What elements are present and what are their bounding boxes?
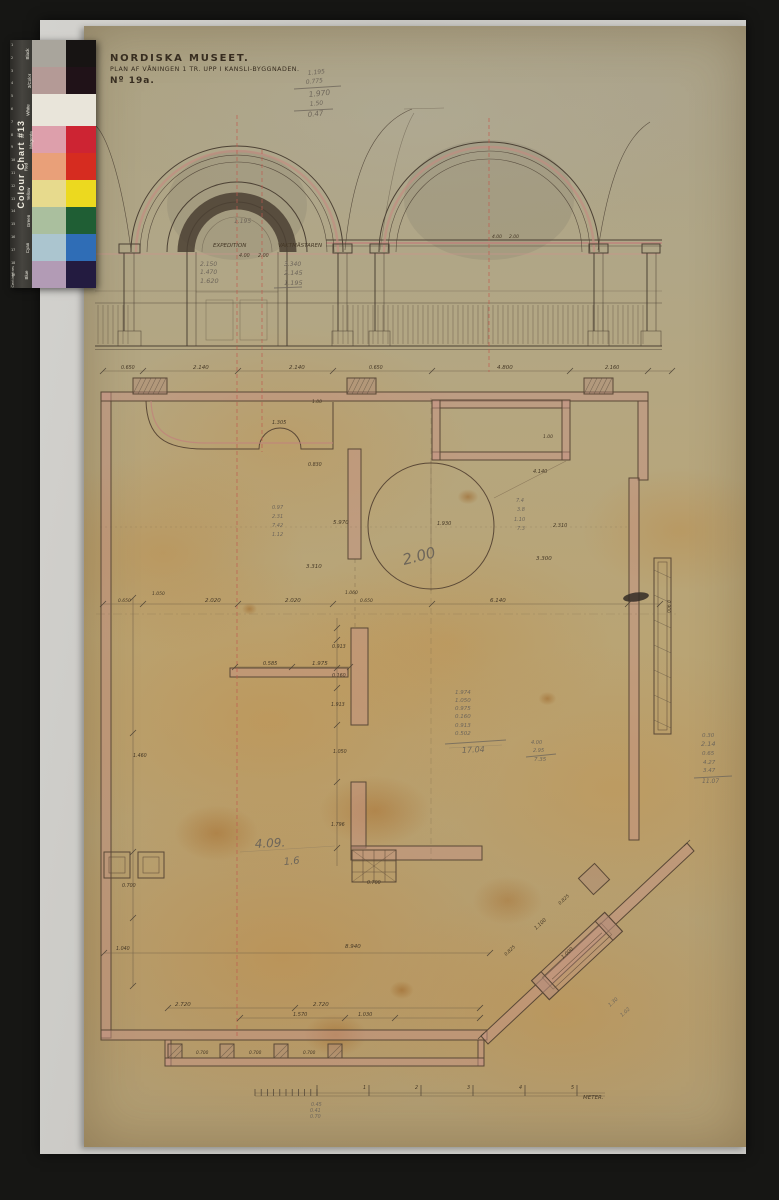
dimension-label: 4.27	[703, 760, 716, 766]
color-chart-row	[32, 126, 96, 153]
color-row-label: White	[25, 104, 30, 116]
dimension-label: 17.04	[462, 745, 485, 755]
title-block: NORDISKA MUSEET. PLAN AF VÅNINGEN 1 TR. …	[110, 53, 300, 86]
ruler-number: 15	[11, 222, 15, 226]
dimension-label: 0.160	[455, 714, 471, 720]
dimension-label: 1.974	[455, 690, 471, 696]
wall	[101, 1030, 487, 1040]
wall	[638, 401, 648, 480]
dimension-label: 0.650	[118, 598, 131, 604]
dimension-label: EXPEDITION	[213, 243, 246, 249]
drawing-line	[654, 620, 671, 628]
ink-blot	[623, 591, 650, 604]
wall	[432, 452, 570, 460]
color-chart-row	[32, 40, 96, 67]
aux-hatching	[98, 305, 690, 1096]
ruler-number: 3	[11, 69, 13, 73]
ruler-number: 10	[11, 158, 15, 162]
dimension-label: METER.	[583, 1095, 604, 1101]
centimetres-label: Centimetres	[11, 266, 15, 287]
color-chart-row	[32, 261, 96, 288]
wall	[101, 392, 111, 1038]
architectural-drawing: EXPEDITIONVAKTMÄSTAREN4.002.002.1501.470…	[0, 0, 779, 1200]
diagonal-door-detail	[532, 912, 623, 999]
color-patch-full	[66, 67, 96, 94]
color-chart-row	[32, 180, 96, 207]
dimension-label: 0.825	[557, 893, 571, 906]
dimension-label: 7.42	[272, 523, 283, 529]
dimension-label: 0.47	[307, 109, 324, 119]
dimension-label: 0.913	[332, 644, 346, 650]
ruler-number: 12	[11, 184, 15, 188]
dimension-label: 0.585	[263, 661, 277, 667]
dimension-label: 1.30	[607, 996, 619, 1008]
drawing-line	[654, 570, 671, 578]
dimension-label: 2.31	[272, 514, 283, 520]
dimension-label: 11.07	[702, 778, 719, 785]
wall	[351, 846, 482, 860]
elevation-section	[95, 108, 662, 350]
color-patch-light	[32, 153, 66, 180]
dimension-label: 1.970	[308, 88, 331, 99]
color-patch	[32, 94, 96, 126]
dimension-label: 4.140	[533, 469, 547, 475]
ruler-number: 18	[11, 261, 15, 265]
color-patch-full	[66, 261, 96, 288]
dimension-label: 1	[363, 1085, 366, 1091]
color-patch-light	[32, 234, 66, 261]
dimension-label: 1.10	[514, 517, 525, 523]
dimension-label: 0.70	[310, 1114, 321, 1120]
dimension-label: 0.913	[455, 723, 471, 729]
dimension-label: 3.340	[284, 261, 301, 268]
archival-photo: EXPEDITIONVAKTMÄSTAREN4.002.002.1501.470…	[0, 0, 779, 1200]
wall	[432, 400, 570, 408]
color-patch-light	[32, 180, 66, 207]
color-row-label: Green	[26, 214, 31, 227]
dimension-label: 1.620	[200, 277, 219, 285]
wall	[348, 449, 361, 559]
dimension-label: 3.300	[536, 556, 552, 562]
color-row-label: Red	[24, 162, 29, 170]
dimension-label: 2.00	[509, 234, 519, 240]
color-row-label: Blue	[24, 270, 29, 279]
dimension-label: 2.95	[533, 748, 544, 754]
dimension-label: 4	[519, 1085, 522, 1091]
color-patch-full	[66, 153, 96, 180]
dimension-label: 2.160	[605, 365, 619, 371]
color-row-label: Black	[25, 48, 30, 59]
color-row-label: Magenta	[28, 131, 33, 149]
dimension-label: 4.00	[531, 740, 542, 746]
diagonal-pier-detail	[578, 863, 609, 894]
dimension-label: 8.940	[345, 944, 361, 950]
ruler-number: 16	[11, 235, 15, 239]
dimension-label: 4.800	[497, 365, 513, 371]
dimension-label: 0.650	[369, 365, 383, 371]
color-patch-light	[32, 40, 66, 67]
color-row-label: Yellow	[26, 187, 31, 200]
dimension-label: 1.050	[455, 698, 471, 704]
dimension-label: 1.913	[331, 702, 345, 708]
dimension-label: 0.700	[367, 880, 381, 886]
dimension-label: 1.195	[284, 279, 303, 287]
dimension-label: 1.796	[331, 822, 345, 828]
color-chart-row	[32, 94, 96, 126]
dimension-label: 0.160	[332, 673, 346, 679]
ruler-number: 7	[11, 120, 13, 124]
wall	[165, 1058, 484, 1066]
color-chart-row	[32, 153, 96, 180]
wall	[432, 400, 440, 460]
dimension-label: 2.140	[289, 365, 305, 371]
dimension-label: 1.00	[312, 399, 322, 405]
dimension-label: 1.570	[293, 1012, 307, 1018]
dimension-label: 2.145	[284, 269, 303, 277]
dimension-label: 1.12	[272, 532, 283, 538]
dimension-label: 0.700	[122, 883, 136, 889]
dimension-label: 6.140	[490, 598, 506, 604]
drawing-subtitle: PLAN AF VÅNINGEN 1 TR. UPP I KANSLI-BYGG…	[110, 66, 300, 73]
dimension-label: 0.700	[303, 1050, 316, 1056]
dimension-label: 0.700	[196, 1050, 209, 1056]
color-chart-rows	[32, 40, 96, 288]
dimension-label: 1.305	[272, 420, 286, 426]
dimension-label: 0.775	[305, 77, 323, 86]
color-chart-row	[32, 234, 96, 261]
drawing-line	[654, 670, 671, 678]
dimension-label: 0.65	[702, 751, 715, 757]
dimension-label: 2.14	[701, 740, 715, 748]
ruler-number: 4	[11, 81, 13, 85]
dimension-label: 1.050	[333, 749, 347, 755]
dimension-label: 7.4	[516, 498, 524, 504]
dimension-label: 0.30	[702, 733, 715, 739]
dimension-label: 1.060	[345, 590, 358, 596]
dimension-label: 1.00	[543, 434, 553, 440]
drawing-title: NORDISKA MUSEET.	[110, 53, 300, 64]
color-patch-light	[32, 261, 66, 288]
drawing-number: Nº 19a.	[110, 76, 300, 86]
dimension-label: VAKTMÄSTAREN	[278, 242, 322, 249]
dimension-label: 0.650	[360, 598, 373, 604]
ruler-number: 9	[11, 145, 13, 149]
dimension-label: 0.502	[455, 731, 471, 737]
dimension-label: 7.35	[534, 757, 547, 763]
dimension-label: 1.030	[358, 1012, 372, 1018]
wall	[629, 478, 639, 840]
wall	[351, 628, 368, 725]
dimension-label: 2.720	[313, 1002, 329, 1008]
ruler-number: 1	[11, 43, 13, 47]
ruler-number: 8	[11, 133, 13, 137]
color-patch-light	[32, 67, 66, 94]
dimension-label: 1.975	[312, 661, 328, 667]
dimension-label: 0.900	[665, 600, 671, 613]
dimension-label: 5.970	[333, 520, 349, 526]
dimension-label: 2.720	[175, 1002, 191, 1008]
dimension-label: 1.195	[234, 218, 251, 225]
dimension-label: 0.41	[310, 1108, 321, 1114]
dimension-label: 1.6	[283, 856, 300, 868]
dimension-label: 4.00	[492, 234, 502, 240]
dimension-label: 4.00	[239, 253, 250, 259]
dimension-label: 0.45	[311, 1102, 322, 1108]
floor-plan	[101, 378, 694, 1066]
color-row-label: 3/Color	[27, 73, 32, 88]
ruler-number: 11	[11, 171, 15, 175]
dimension-label: 1.470	[200, 269, 217, 276]
dimension-label: 0.830	[308, 462, 322, 468]
dimension-label: 4.09.	[254, 835, 285, 851]
dimension-label: 1.50	[309, 100, 323, 108]
dimension-label: 7.3	[517, 526, 525, 532]
color-patch-full	[66, 40, 96, 67]
color-chart-ruler: 12345678910111213141516171819 Colour Cha…	[10, 40, 32, 288]
dimension-label: 1.100	[533, 917, 548, 931]
dimension-label: 3.310	[306, 564, 322, 570]
dimension-label: 1.040	[116, 946, 130, 952]
dimension-label: 5	[571, 1085, 574, 1091]
dimension-label: 2	[415, 1085, 418, 1091]
color-patch-full	[66, 234, 96, 261]
dimension-label: 3	[467, 1085, 470, 1091]
dimension-label: 0.825	[503, 944, 517, 957]
dimension-label: 2.00	[258, 253, 269, 259]
ruler-number: 14	[11, 209, 15, 213]
color-chart-row	[32, 67, 96, 94]
dimension-label: 1.02	[619, 1006, 631, 1018]
dimension-label: 1.460	[133, 753, 147, 759]
color-calibration-chart: 12345678910111213141516171819 Colour Cha…	[10, 40, 96, 288]
color-patch-light	[32, 126, 66, 153]
ruler-number: 5	[11, 94, 13, 98]
dimension-label: 0.97	[272, 505, 284, 511]
dimension-label: 0.650	[121, 365, 135, 371]
ruler-number: 13	[11, 197, 15, 201]
ruler-number: 6	[11, 107, 13, 111]
wall	[351, 782, 366, 848]
dimension-label: 2.020	[285, 598, 301, 604]
ruler-number: 2	[11, 56, 13, 60]
curved-bay	[146, 401, 333, 449]
dimension-lines	[96, 371, 676, 1096]
wall	[562, 400, 570, 460]
color-chart-row	[32, 207, 96, 234]
dimension-label: 3.8	[517, 507, 525, 513]
dimension-label: 2.140	[193, 365, 209, 371]
dimension-label: 2.150	[200, 261, 217, 268]
dimension-label: 2.00	[401, 543, 438, 569]
color-patch-full	[66, 207, 96, 234]
color-patch-full	[66, 126, 96, 153]
color-patch-full	[66, 180, 96, 207]
dimension-label: 1.930	[437, 521, 451, 527]
dimension-label: 0.700	[249, 1050, 262, 1056]
drawing-line	[654, 695, 671, 703]
drawing-line	[654, 645, 671, 653]
dimension-label: 3.47	[703, 768, 716, 774]
dimension-label: 2.020	[205, 598, 221, 604]
color-patch-light	[32, 207, 66, 234]
dimension-label: 1.195	[307, 68, 325, 77]
ruler-number: 17	[11, 248, 15, 252]
wall	[230, 668, 348, 677]
dimension-label: 2.310	[553, 523, 567, 529]
drawing-line	[654, 720, 671, 728]
dimension-label: 1.050	[152, 591, 165, 597]
color-row-label: Cyan	[25, 242, 30, 253]
dimension-label: 0.975	[455, 706, 471, 712]
